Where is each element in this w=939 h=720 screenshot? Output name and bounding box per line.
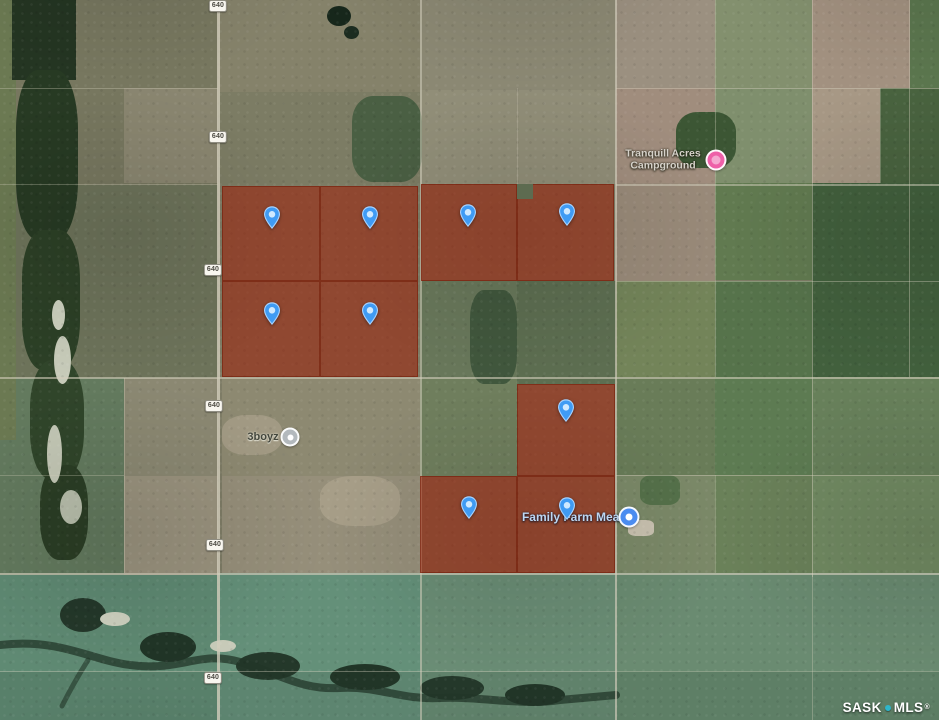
listing-pin[interactable] <box>264 206 281 234</box>
listing-pin[interactable] <box>558 399 575 427</box>
sask-mls-watermark: SASK MLS ® <box>843 700 930 715</box>
listing-pin[interactable] <box>559 497 576 525</box>
listing-pin[interactable] <box>460 204 477 232</box>
watermark-text-left: SASK <box>843 700 882 715</box>
listing-pin[interactable] <box>362 302 379 330</box>
satellite-map[interactable]: 640640640640640640 Tranquill AcresCampgr… <box>0 0 939 720</box>
registered-mark: ® <box>924 703 930 713</box>
listing-pin[interactable] <box>362 206 379 234</box>
listing-pin[interactable] <box>264 302 281 330</box>
listing-pin-layer <box>0 0 939 720</box>
watermark-text-right: MLS <box>894 700 924 715</box>
listing-pin[interactable] <box>559 203 576 231</box>
listing-pin[interactable] <box>461 496 478 524</box>
mls-dot-icon <box>885 705 891 711</box>
